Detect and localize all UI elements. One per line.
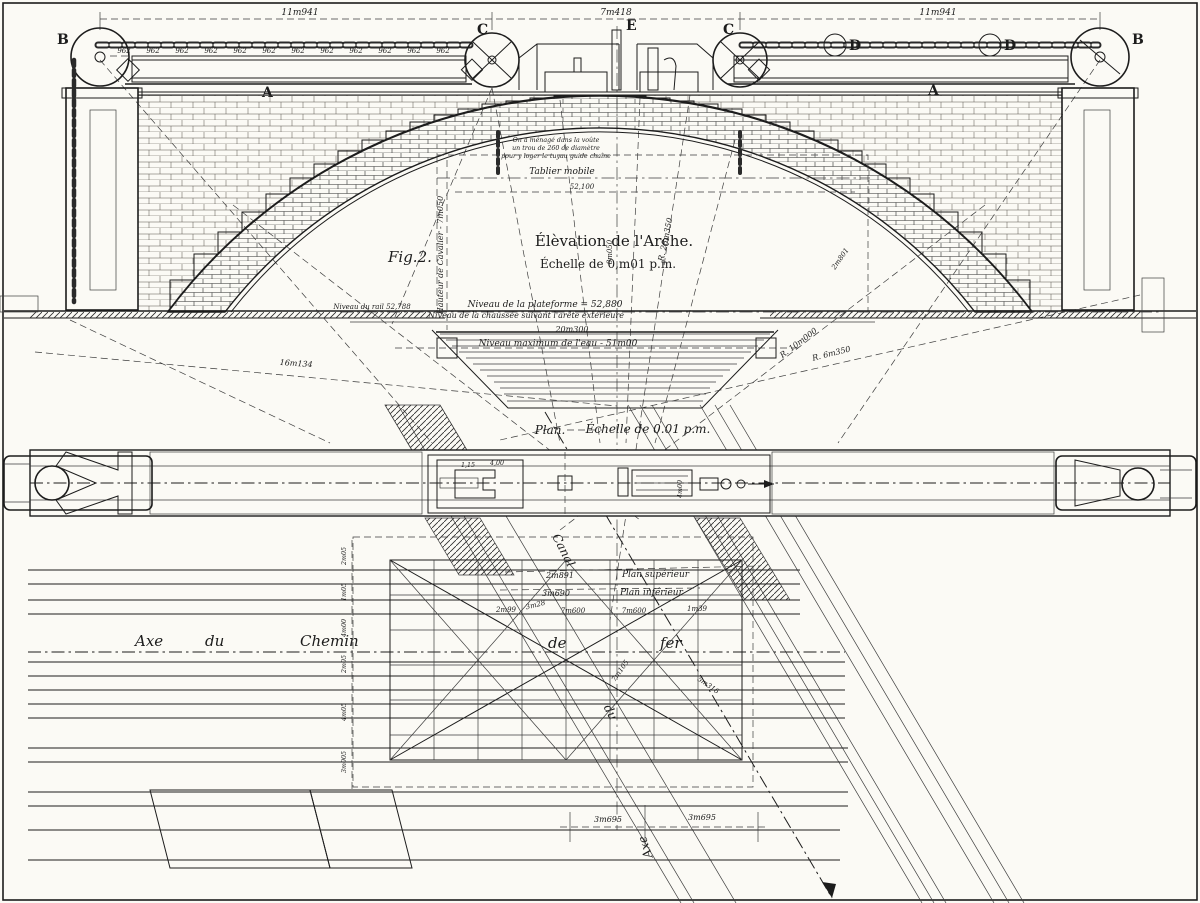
niveau-eau: Niveau maximum de l'eau - 51m00 <box>478 339 638 349</box>
svg-text:4m05: 4m05 <box>341 703 348 722</box>
pier-left <box>62 60 142 310</box>
du-word: du <box>205 632 224 650</box>
railway-lines <box>28 570 848 860</box>
plan-inf-label: Plan inférieur <box>619 587 684 598</box>
svg-text:3m005: 3m005 <box>341 751 348 773</box>
canal-du-word: du <box>601 702 620 722</box>
plan-strip: Plan. Échelle de 0.01 p.m. <box>4 421 1196 516</box>
svg-text:962: 962 <box>436 47 450 55</box>
vault-note: On a ménagé dans la voûte un trou de 260… <box>501 137 611 160</box>
letter-e: E <box>626 18 637 34</box>
row-c: 7m600 <box>561 607 586 615</box>
radius-6350-label: R. 6m350 <box>810 344 851 362</box>
chain-right <box>742 34 1098 56</box>
svg-text:4m00: 4m00 <box>341 619 348 638</box>
bottom-a: 3m695 <box>594 815 622 824</box>
svg-text:962: 962 <box>378 47 392 55</box>
dim-16134-label: 16m134 <box>279 358 313 369</box>
letter-c-left: C <box>477 22 488 38</box>
svg-text:2m05: 2m05 <box>341 655 348 674</box>
fer-word: fer <box>659 634 682 652</box>
svg-text:962: 962 <box>291 47 305 55</box>
elevation-view: 11m941 7m418 11m941 962 962 962 962 962 … <box>0 8 1196 830</box>
svg-text:962: 962 <box>146 47 160 55</box>
svg-text:On a ménagé dans la voûte: On a ménagé dans la voûte <box>513 137 600 144</box>
svg-text:pour y loger le tuyau guide ch: pour y loger le tuyau guide chaîne <box>501 153 611 160</box>
dim-400: 4,00 <box>489 460 504 467</box>
row-b: 3m28 <box>525 599 547 612</box>
svg-text:Hauteur de Cavalier - 7m050: Hauteur de Cavalier - 7m050 <box>436 196 445 315</box>
svg-text:962: 962 <box>349 47 363 55</box>
row-d: 7m600 <box>622 607 647 615</box>
plan-level-labels: 2m891 Plan supérieur 3m690 Plan inférieu… <box>495 566 760 615</box>
canal-axe-word: Axe <box>635 834 656 861</box>
svg-text:2m05: 2m05 <box>341 547 348 566</box>
diag-dim-b: 5m316 <box>696 675 721 696</box>
left-dim-column: 2m05 1m05 4m00 2m05 4m05 3m005 <box>341 540 352 790</box>
svg-text:962: 962 <box>204 47 218 55</box>
row-e: 1m39 <box>687 605 708 613</box>
tablier-label: Tablier mobile <box>529 167 594 177</box>
truss-left <box>125 56 472 84</box>
fig-label: Fig.2. <box>387 248 432 266</box>
letter-b-right: B <box>1132 32 1144 48</box>
cavalier-dimension: Hauteur de Cavalier - 7m050 <box>436 160 447 330</box>
plan-title: Plan. <box>534 423 566 437</box>
niveau-rail: Niveau du rail 52,788 <box>332 303 411 311</box>
svg-text:962: 962 <box>175 47 189 55</box>
pulley-b-right <box>1071 28 1129 86</box>
top-dimension-line: 11m941 7m418 11m941 <box>100 8 1100 30</box>
svg-text:962: 962 <box>233 47 247 55</box>
plan-title-block: Plan. Échelle de 0.01 p.m. <box>534 421 711 437</box>
svg-text:1m05: 1m05 <box>341 583 348 601</box>
pulley-b-left <box>71 28 139 86</box>
engraving-sheet: 11m941 7m418 11m941 962 962 962 962 962 … <box>0 0 1200 903</box>
plan-sup-dim: 2m891 <box>545 571 574 580</box>
svg-text:un trou de 260 de diamètre: un trou de 260 de diamètre <box>512 145 600 152</box>
svg-text:962: 962 <box>262 47 276 55</box>
letter-b-left: B <box>57 32 69 48</box>
tablier-level: 52,100 <box>570 183 595 191</box>
letter-d-1: D <box>849 38 861 54</box>
bottom-dimension-row: 3m695 3m695 <box>560 805 765 848</box>
bridge-drawing: 11m941 7m418 11m941 962 962 962 962 962 … <box>0 0 1200 903</box>
truss-right <box>728 56 1075 84</box>
bottom-b: 3m695 <box>688 813 716 822</box>
axe-word: Axe <box>133 632 163 650</box>
letter-d-2: D <box>1004 38 1016 54</box>
chemin-word: Chemin <box>300 632 359 650</box>
dim-400r: 4m00 <box>677 480 684 499</box>
dim-2801-label: 2m801 <box>829 247 850 272</box>
elevation-scale: Échelle de 0,m01 p.m. <box>540 256 676 271</box>
letter-c-right: C <box>723 22 734 38</box>
plan-scale: Échelle de 0.01 p.m. <box>585 421 711 436</box>
plan-sup-label: Plan supérieur <box>621 569 690 580</box>
svg-text:962: 962 <box>407 47 421 55</box>
bank-parallelograms <box>150 790 412 868</box>
machinery-housing <box>519 30 713 92</box>
dim-center: 7m418 <box>600 8 632 18</box>
level-labels: Niveau du rail 52,788 Niveau de la plate… <box>332 300 637 349</box>
pier-right <box>1058 88 1138 310</box>
niveau-chaussee: Niveau de la chaussée suivant l'arête ex… <box>427 311 624 320</box>
dim-left: 11m941 <box>281 8 318 18</box>
plan-inf-dim: 3m690 <box>542 589 570 598</box>
row-a: 2m99 <box>495 606 517 614</box>
dim-right: 11m941 <box>919 8 956 18</box>
pulley-c-left <box>461 33 519 87</box>
niveau-plateforme: Niveau de la plateforme = 52,880 <box>467 300 623 310</box>
de-word: de <box>548 634 567 652</box>
svg-text:962: 962 <box>320 47 334 55</box>
dim-115: 1,15 <box>461 462 475 469</box>
